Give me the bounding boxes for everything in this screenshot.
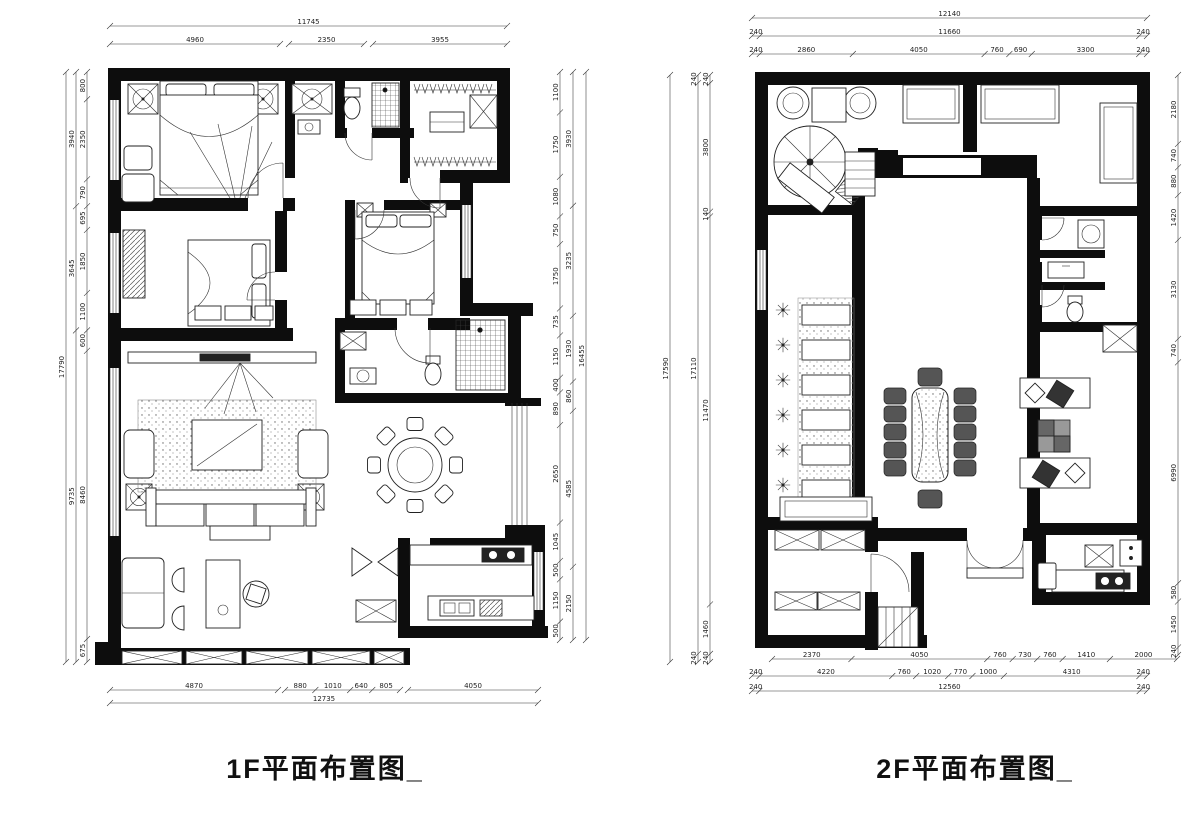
- dimension-label: 500: [552, 563, 560, 576]
- dimension-label: 890: [552, 402, 560, 415]
- bathroom-1: [344, 83, 399, 127]
- chair: [172, 568, 184, 592]
- dimension-label: 1450: [1170, 616, 1178, 634]
- dimension-label: 2650: [552, 465, 560, 483]
- dimension-label: 1460: [702, 620, 710, 638]
- dimension-label: 240: [1137, 668, 1150, 676]
- dimension-label: 240: [1137, 683, 1150, 691]
- dimension-label: 16455: [578, 345, 586, 367]
- dimension-label: 1150: [552, 592, 560, 610]
- armchair: [124, 430, 154, 478]
- dimension-label: 580: [1170, 586, 1178, 599]
- dimension-chain: 2403800140114701460240: [702, 72, 713, 665]
- dimension-label: 240: [1170, 645, 1178, 658]
- dimension-chain: 4960: [107, 36, 283, 47]
- sofa: [256, 504, 304, 526]
- dimension-label: 1750: [552, 136, 560, 154]
- dimension-label: 140: [702, 207, 710, 220]
- dimension-label: 240: [749, 668, 762, 676]
- dimension-label: 17590: [662, 357, 670, 379]
- door-corridor: [871, 554, 909, 592]
- x-box-window: [470, 95, 497, 128]
- dining-chair: [407, 418, 423, 431]
- dimension-label: 880: [1170, 175, 1178, 188]
- dimension-label: 4870: [185, 682, 203, 690]
- round-chair: [777, 87, 809, 119]
- plant-icon: [776, 373, 790, 387]
- dimension-label: 240: [749, 683, 762, 691]
- door-washroom: [1042, 218, 1064, 240]
- x-box-window: [818, 592, 860, 610]
- dimension-label: 2000: [1135, 651, 1153, 659]
- sink: [350, 368, 376, 384]
- study-room: [122, 558, 269, 630]
- long-table-set: [884, 368, 976, 508]
- dimension-label: 4310: [1063, 668, 1081, 676]
- dimension-label: 760: [993, 651, 1006, 659]
- dimension-chain: 8002350790695185011006008460675: [79, 69, 90, 665]
- dimension-label: 240: [690, 651, 698, 664]
- terrace-table: [812, 88, 846, 122]
- dimension-label: 240: [702, 72, 710, 85]
- dimension-label: 1930: [565, 340, 573, 358]
- dimension-label: 760: [1043, 651, 1056, 659]
- dimension-label: 3235: [565, 252, 573, 270]
- dimension-label: 2350: [79, 130, 87, 148]
- dimension-label: 1000: [979, 668, 997, 676]
- dimension-label: 9735: [68, 487, 76, 505]
- dimension-label: 3645: [68, 259, 76, 277]
- dimension-label: 6990: [1170, 464, 1178, 482]
- dimension-label: 2860: [797, 46, 815, 54]
- dimension-chain: 1100175010807501750735115040089026501045…: [552, 69, 563, 643]
- window: [110, 368, 119, 536]
- dimension-label: 8460: [79, 486, 87, 504]
- dimension-chain: 4870: [107, 682, 281, 693]
- dimension-label: 12735: [313, 695, 335, 703]
- dimension-chain: 12735: [107, 695, 541, 706]
- toilet: [344, 97, 360, 119]
- dimension-label: 790: [79, 186, 87, 199]
- dimension-label: 240: [1136, 28, 1149, 36]
- dimension-label: 12140: [938, 10, 960, 18]
- round-chair: [844, 87, 876, 119]
- plant-icon: [776, 408, 790, 422]
- dimension-label: 675: [79, 644, 87, 657]
- x-box-window: [821, 530, 865, 550]
- floor-plan-1f: [95, 68, 548, 665]
- dimension-chain: 3955: [370, 36, 510, 47]
- living-room: [124, 352, 328, 540]
- dimension-label: 1010: [324, 682, 342, 690]
- bedroom-3: [350, 212, 434, 315]
- dimension-label: 1020: [923, 668, 941, 676]
- x-box-window: [340, 332, 366, 350]
- threshold: [967, 568, 1023, 578]
- dimension-label: 750: [552, 224, 560, 237]
- dimension-chain: 2404220760102077010004310240: [749, 668, 1150, 679]
- armchair: [122, 174, 154, 202]
- floor-plan-2f: [755, 72, 1150, 650]
- dimension-label: 11660: [938, 28, 960, 36]
- dimension-label: 240: [690, 72, 698, 85]
- dimension-label: 240: [749, 46, 762, 54]
- dimension-chain: 11745: [107, 18, 510, 29]
- floor-plan-canvas: 1174549602350395548708801010640805405012…: [0, 0, 1200, 815]
- dining-chair: [407, 500, 423, 513]
- sofa-back: [156, 490, 306, 504]
- dimension-label: 760: [898, 668, 911, 676]
- x-box-window: [775, 592, 817, 610]
- dimension-label: 860: [565, 389, 573, 402]
- dining-chair: [434, 484, 455, 505]
- dimension-label: 3300: [1077, 46, 1095, 54]
- dimension-label: 800: [79, 79, 87, 92]
- dining-chair: [368, 457, 381, 473]
- dimension-label: 2180: [1170, 101, 1178, 119]
- dimension-label: 770: [954, 668, 967, 676]
- x-box-window: [1103, 325, 1137, 352]
- dining-chair: [376, 426, 397, 447]
- plant-icon: [776, 338, 790, 352]
- dimension-label: 1410: [1077, 651, 1095, 659]
- dimension-chain: 240286040507606903300240: [749, 46, 1150, 57]
- dimension-label: 735: [552, 315, 560, 328]
- dimension-label: 640: [355, 682, 368, 690]
- dimension-label: 3130: [1170, 281, 1178, 299]
- chair: [172, 606, 184, 630]
- stairs-lower: [878, 607, 918, 647]
- dimension-chain: 21807408801420313074069905801450240: [1170, 72, 1181, 658]
- dimension-chain: 394036459735: [68, 69, 79, 665]
- dimension-label: 11745: [297, 18, 319, 26]
- dimension-chain: 17590: [662, 72, 673, 665]
- dimension-chain: 16455: [578, 69, 589, 643]
- dimension-label: 12560: [938, 683, 960, 691]
- bathroom-2: [350, 320, 505, 390]
- bifold-door: [352, 548, 372, 576]
- long-table: [912, 388, 948, 482]
- dimension-label: 1750: [552, 267, 560, 285]
- drawing-sheet: 1174549602350395548708801010640805405012…: [0, 0, 1200, 815]
- plan-title-1f: 1F平面布置图_: [226, 754, 424, 784]
- dimension-label: 4050: [910, 651, 928, 659]
- dimension-label: 805: [379, 682, 392, 690]
- dimension-chain: 8801010640805: [282, 682, 403, 693]
- dining-chair: [450, 457, 463, 473]
- dimension-label: 2370: [803, 651, 821, 659]
- dimension-chain: 17790: [58, 69, 69, 665]
- dimension-label: 1850: [79, 252, 87, 270]
- x-box-window: [1085, 545, 1113, 567]
- double-door: [967, 540, 1023, 568]
- x-box-window: [312, 651, 370, 664]
- dining-table: [388, 438, 442, 492]
- sink: [440, 600, 474, 616]
- dimension-label: 1080: [552, 188, 560, 206]
- dining-chair: [376, 484, 397, 505]
- planter-bench: [780, 497, 872, 521]
- dimension-chain: 39303235193086045852150: [565, 69, 576, 643]
- toilet: [425, 363, 441, 385]
- corridor-lower: [878, 607, 918, 647]
- dimension-label: 400: [552, 378, 560, 391]
- entry-closet: [352, 548, 398, 622]
- dimension-label: 4050: [464, 682, 482, 690]
- toilet: [1067, 302, 1083, 322]
- dimension-chain: 2350: [286, 36, 367, 47]
- window: [757, 250, 766, 310]
- dimension-label: 1100: [79, 303, 87, 321]
- dimension-label: 2350: [318, 36, 336, 44]
- dimension-label: 4220: [817, 668, 835, 676]
- door-bath1: [345, 133, 372, 160]
- dimension-label: 740: [1170, 149, 1178, 162]
- dimension-label: 17110: [690, 357, 698, 379]
- dimension-label: 880: [293, 682, 306, 690]
- x-box-window: [775, 530, 819, 550]
- dimension-label: 3940: [68, 130, 76, 148]
- cabinet: [1120, 540, 1142, 566]
- dimension-label: 1420: [1170, 209, 1178, 227]
- desk: [206, 560, 240, 628]
- dimension-label: 240: [749, 28, 762, 36]
- dimension-label: 4960: [186, 36, 204, 44]
- x-box-window: [128, 84, 158, 114]
- dimension-label: 17790: [58, 356, 66, 378]
- bifold-door: [378, 548, 398, 576]
- window: [534, 552, 543, 610]
- dimension-label: 4585: [565, 480, 573, 498]
- stairs-upper: [845, 152, 875, 196]
- dimension-label: 2150: [565, 595, 573, 613]
- x-box-window: [122, 651, 182, 664]
- dimension-label: 500: [552, 624, 560, 637]
- dimension-label: 730: [1018, 651, 1031, 659]
- dimension-chain: 24012560240: [749, 683, 1150, 694]
- dimension-chain: 24011660240: [749, 28, 1150, 39]
- dimension-label: 3800: [702, 138, 710, 156]
- kitchen: [410, 545, 534, 620]
- dimension-label: 11470: [702, 399, 710, 421]
- dimension-label: 3955: [431, 36, 449, 44]
- window: [110, 100, 119, 180]
- dimension-label: 1045: [552, 533, 560, 551]
- dimension-label: 695: [79, 211, 87, 224]
- dimension-chain: 2370405076073076014102000: [769, 651, 1180, 662]
- dimension-label: 4050: [910, 46, 928, 54]
- laundry-hall: [298, 120, 320, 134]
- dimension-label: 740: [1170, 344, 1178, 357]
- plant-icon: [776, 303, 790, 317]
- cart: [1038, 563, 1056, 589]
- dimension-label: 240: [1136, 46, 1149, 54]
- window: [462, 205, 471, 278]
- x-box-window: [186, 651, 242, 664]
- x-box-window: [292, 84, 332, 114]
- dimension-chain: 4050: [405, 682, 541, 693]
- x-box-window: [374, 651, 404, 664]
- bath-suite: [1048, 220, 1104, 322]
- dimension-label: 600: [79, 334, 87, 347]
- wardrobe: [123, 230, 145, 298]
- dimension-label: 690: [1014, 46, 1027, 54]
- door-bath2: [395, 328, 430, 363]
- dimension-label: 1150: [552, 348, 560, 366]
- dining-chair: [434, 426, 455, 447]
- dimension-label: 3930: [565, 130, 573, 148]
- plant-icon: [776, 443, 790, 457]
- cabinet: [1048, 262, 1084, 278]
- dimension-label: 1100: [552, 83, 560, 101]
- x-box-window: [246, 651, 308, 664]
- armchair: [298, 430, 328, 478]
- bay-window: [512, 403, 527, 525]
- dimension-label: 240: [702, 651, 710, 664]
- dimension-label: 760: [990, 46, 1003, 54]
- toilet-tank: [344, 88, 360, 97]
- dimension-chain: 12140: [749, 10, 1150, 21]
- dining-room: [368, 418, 463, 513]
- plant-icon: [776, 478, 790, 492]
- bedroom-2: [123, 230, 273, 326]
- armchair: [124, 146, 152, 170]
- plan-title-2f: 2F平面布置图_: [876, 754, 1074, 784]
- dimension-chain: 24017110240: [690, 72, 701, 665]
- window: [110, 233, 119, 313]
